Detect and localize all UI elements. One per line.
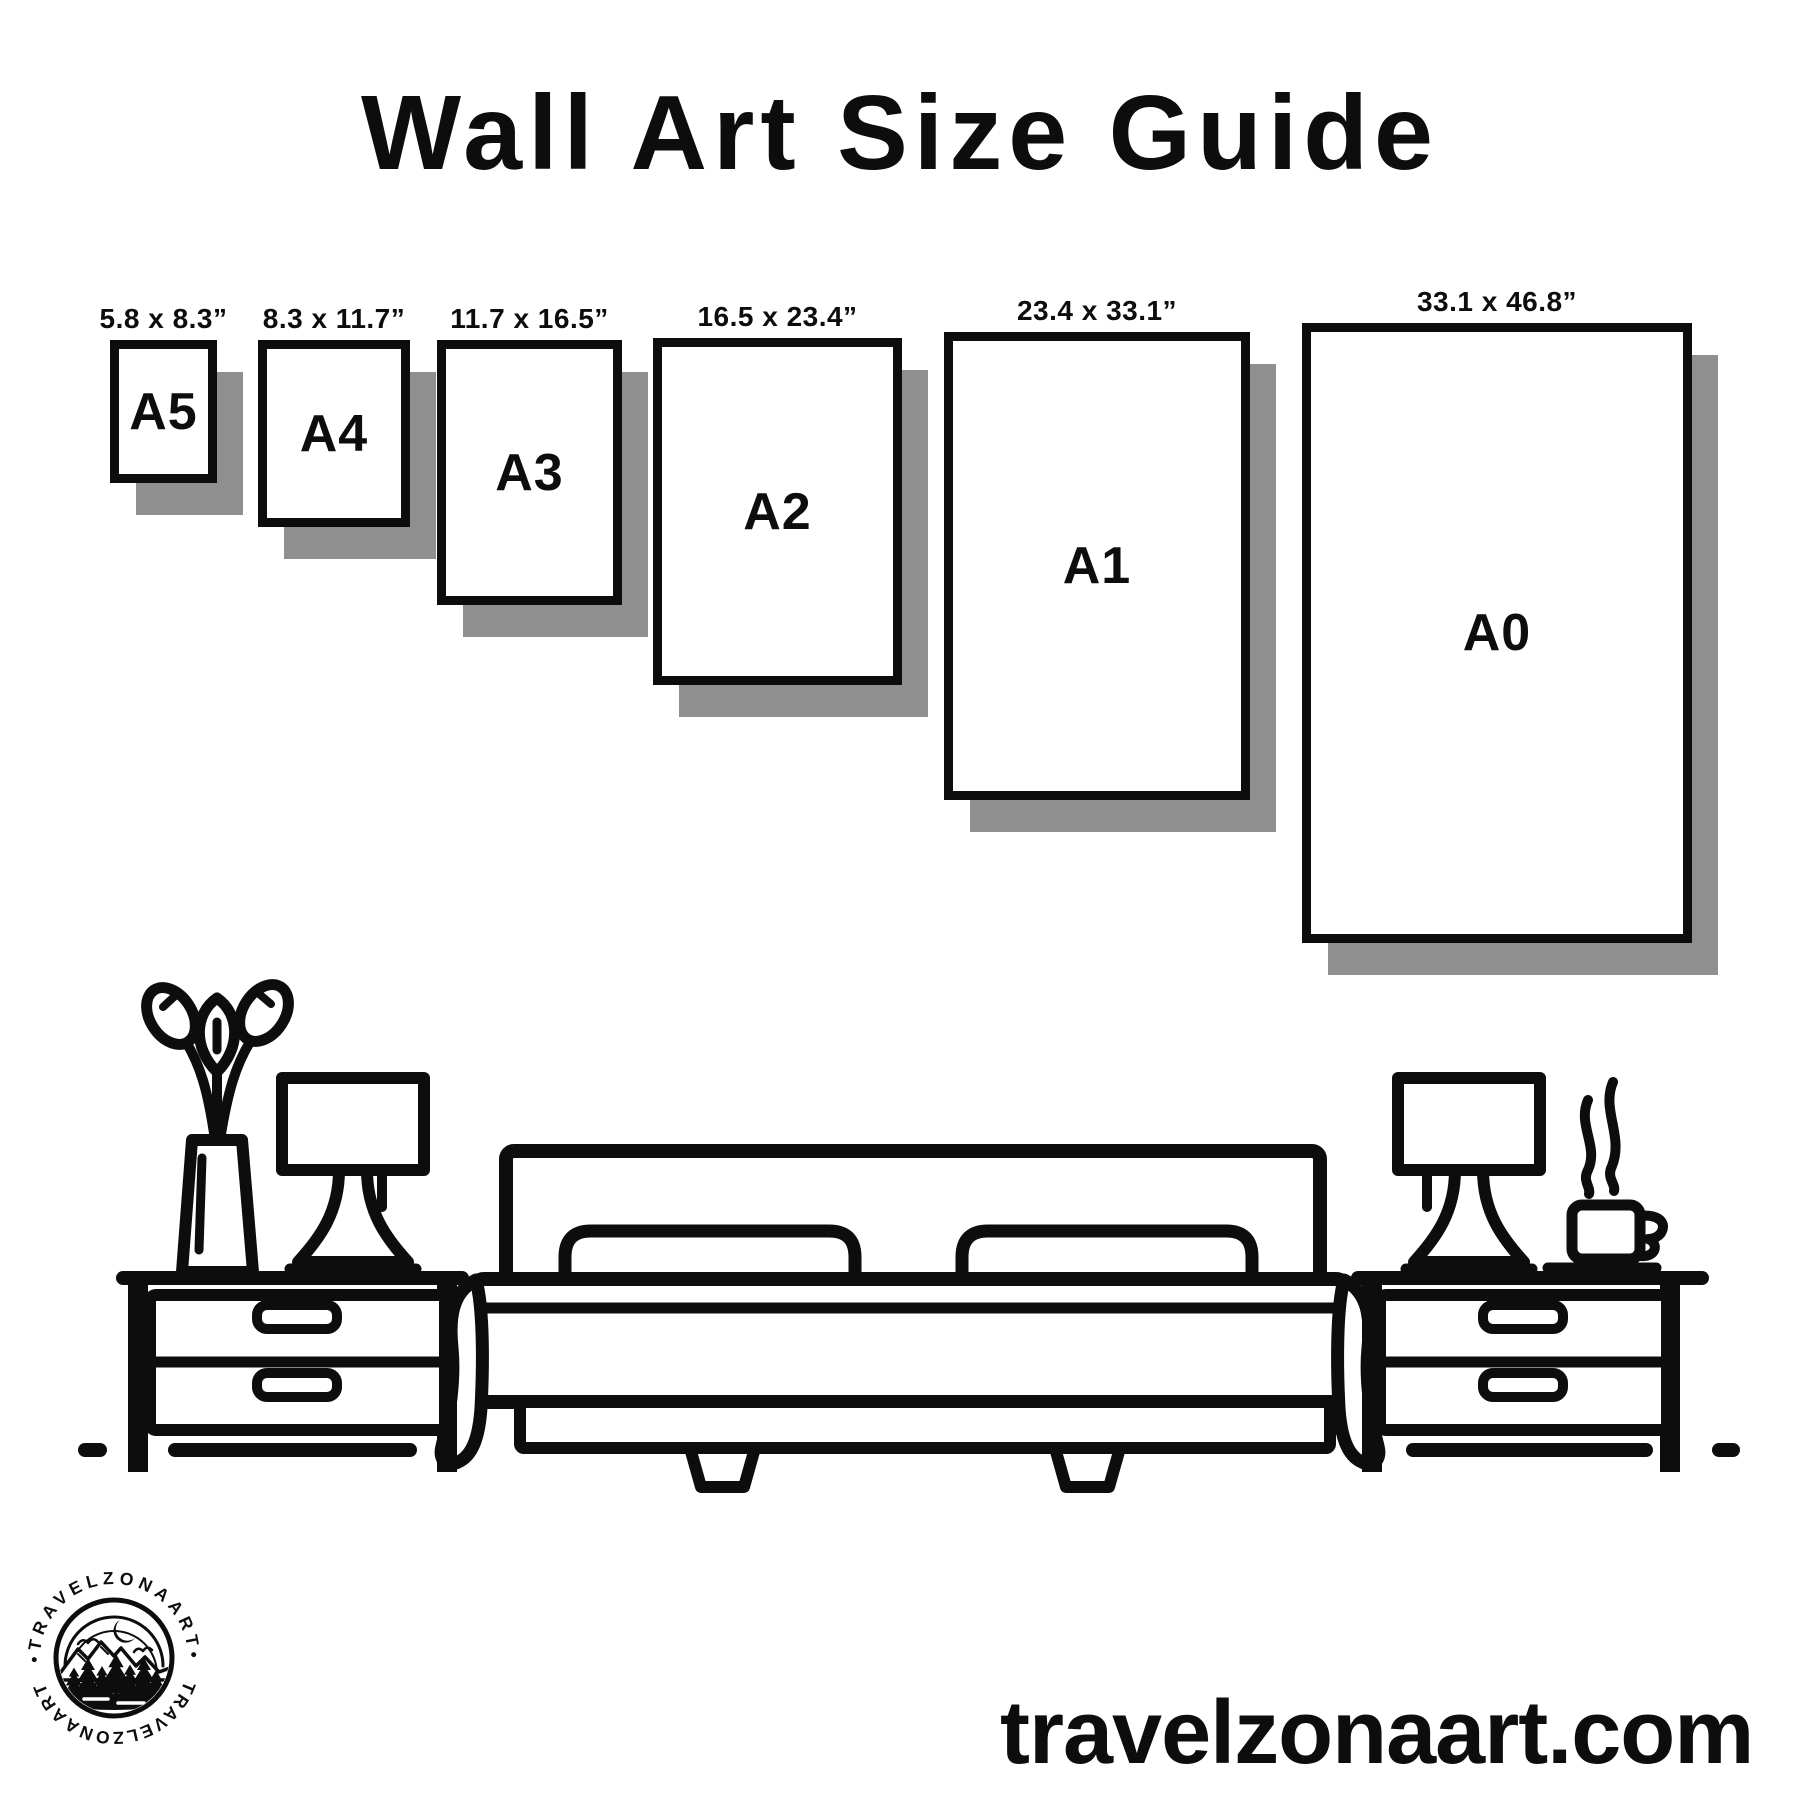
table-lamp-left xyxy=(282,1078,424,1269)
size-label: A4 xyxy=(300,404,368,464)
lamp-stem xyxy=(298,1170,408,1262)
cup-body xyxy=(1572,1205,1640,1259)
drawer-handle xyxy=(257,1373,337,1397)
coffee-cup xyxy=(1548,1082,1663,1268)
mattress xyxy=(474,1279,1346,1402)
page-title: Wall Art Size Guide xyxy=(0,58,1800,208)
drawer-handle xyxy=(257,1305,337,1329)
logo-ring-text-top: •TRAVELZONAART• xyxy=(24,1568,204,1663)
size-label: A1 xyxy=(1063,536,1131,596)
size-dimensions: 5.8 x 8.3” xyxy=(100,303,228,335)
size-guide-poster: Wall Art Size Guide 5.8 x 8.3” A5 8.3 x … xyxy=(0,0,1800,1800)
bed-base xyxy=(520,1402,1330,1448)
brand-logo: •TRAVELZONAART• TRAVELZONAART xyxy=(22,1566,206,1750)
size-label: A0 xyxy=(1463,603,1531,663)
logo-mountain-scene xyxy=(58,1617,170,1720)
size-label: A5 xyxy=(129,382,197,442)
size-label: A3 xyxy=(495,443,563,503)
vase-accent-line xyxy=(199,1158,202,1250)
vase xyxy=(182,1140,253,1272)
bed-leg-right xyxy=(1055,1448,1120,1487)
bed-leg-left xyxy=(690,1448,755,1487)
plant-leaf xyxy=(230,976,299,1051)
size-dimensions: 16.5 x 23.4” xyxy=(697,301,857,333)
drawer-handle xyxy=(1483,1305,1563,1329)
lamp-shade xyxy=(282,1078,424,1170)
website-url: travelzonaart.com xyxy=(1000,1682,1753,1785)
bedroom-illustration xyxy=(50,970,1750,1510)
nightstand-right xyxy=(1358,1278,1733,1472)
size-frame-a5: 5.8 x 8.3” A5 xyxy=(110,340,217,483)
size-dimensions: 33.1 x 46.8” xyxy=(1417,286,1577,318)
bed xyxy=(441,1151,1379,1487)
size-frame-a1: 23.4 x 33.1” A1 xyxy=(944,332,1250,800)
size-label: A2 xyxy=(743,482,811,542)
drawer-handle xyxy=(1483,1373,1563,1397)
size-frame-a4: 8.3 x 11.7” A4 xyxy=(258,340,410,527)
lamp-shade xyxy=(1398,1078,1540,1170)
size-frame-a2: 16.5 x 23.4” A2 xyxy=(653,338,902,685)
size-dimensions: 23.4 x 33.1” xyxy=(1017,295,1177,327)
size-frame-a0: 33.1 x 46.8” A0 xyxy=(1302,323,1692,943)
steam-icon xyxy=(1609,1082,1615,1191)
table-lamp-right xyxy=(1398,1078,1540,1269)
size-dimensions: 8.3 x 11.7” xyxy=(263,303,406,335)
vase-plant xyxy=(137,976,299,1272)
size-frame-a3: 11.7 x 16.5” A3 xyxy=(437,340,622,605)
steam-icon xyxy=(1585,1100,1591,1194)
size-dimensions: 11.7 x 16.5” xyxy=(450,303,609,335)
nightstand-left xyxy=(85,1278,462,1472)
